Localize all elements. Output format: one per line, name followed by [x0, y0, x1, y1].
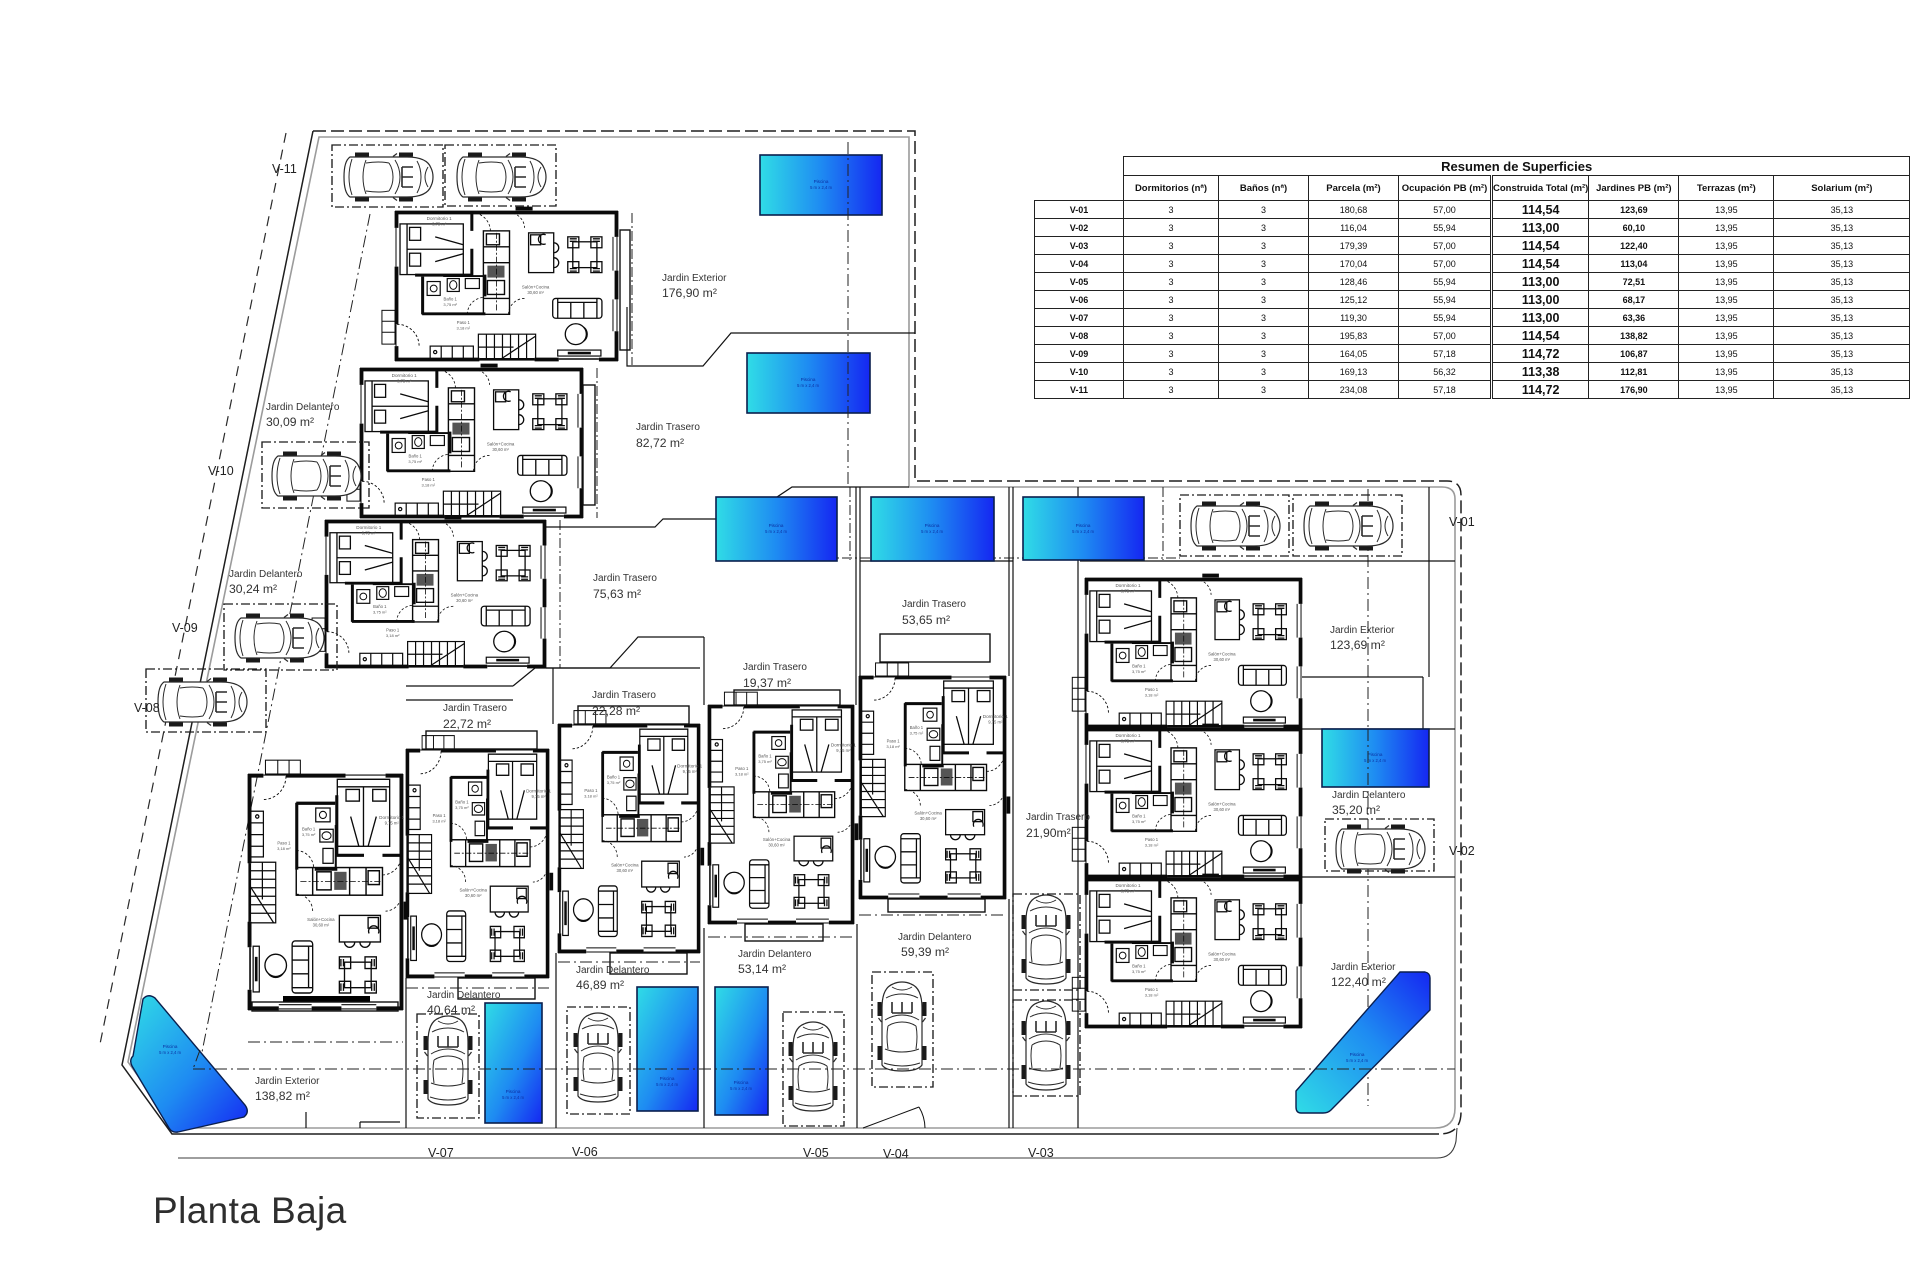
- svg-text:Jardin Delantero: Jardin Delantero: [1332, 790, 1406, 801]
- svg-text:53,65 m²: 53,65 m²: [902, 613, 950, 627]
- svg-text:30,09 m²: 30,09 m²: [266, 415, 314, 429]
- svg-text:Jardin Trasero: Jardin Trasero: [636, 422, 700, 433]
- svg-text:35,20 m²: 35,20 m²: [1332, 803, 1380, 817]
- svg-text:Jardin Trasero: Jardin Trasero: [1026, 812, 1090, 823]
- svg-text:75,63 m²: 75,63 m²: [593, 587, 641, 601]
- svg-text:123,69 m²: 123,69 m²: [1330, 638, 1385, 652]
- svg-text:V-04: V-04: [883, 1147, 909, 1161]
- svg-text:22,72 m²: 22,72 m²: [443, 717, 491, 731]
- svg-text:Jardin Trasero: Jardin Trasero: [593, 573, 657, 584]
- svg-text:Jardin Delantero: Jardin Delantero: [576, 965, 650, 976]
- svg-text:19,37 m²: 19,37 m²: [743, 676, 791, 690]
- svg-text:21,90m²: 21,90m²: [1026, 826, 1071, 840]
- svg-text:Jardin Trasero: Jardin Trasero: [592, 690, 656, 701]
- svg-text:V-05: V-05: [803, 1146, 829, 1160]
- svg-text:V-03: V-03: [1028, 1146, 1054, 1160]
- svg-text:Jardin Exterior: Jardin Exterior: [255, 1076, 320, 1087]
- svg-text:V-08: V-08: [134, 701, 160, 715]
- svg-text:176,90 m²: 176,90 m²: [662, 286, 717, 300]
- svg-text:Jardin Delantero: Jardin Delantero: [738, 949, 812, 960]
- svg-text:22,28 m²: 22,28 m²: [592, 704, 640, 718]
- svg-text:Jardin Delantero: Jardin Delantero: [427, 990, 501, 1001]
- svg-text:Jardin Delantero: Jardin Delantero: [266, 402, 340, 413]
- svg-text:V-01: V-01: [1449, 515, 1475, 529]
- svg-text:Jardin Trasero: Jardin Trasero: [902, 599, 966, 610]
- svg-text:Jardin Exterior: Jardin Exterior: [1330, 625, 1395, 636]
- svg-text:V-06: V-06: [572, 1145, 598, 1159]
- svg-text:V-09: V-09: [172, 621, 198, 635]
- svg-text:138,82 m²: 138,82 m²: [255, 1089, 310, 1103]
- svg-text:V-02: V-02: [1449, 844, 1475, 858]
- svg-text:V-07: V-07: [428, 1146, 454, 1160]
- svg-text:V-11: V-11: [272, 162, 297, 176]
- svg-text:122,40 m²: 122,40 m²: [1331, 975, 1386, 989]
- svg-text:40,64 m²: 40,64 m²: [427, 1003, 475, 1017]
- svg-text:Jardin Trasero: Jardin Trasero: [743, 662, 807, 673]
- svg-text:Jardin Delantero: Jardin Delantero: [229, 569, 303, 580]
- svg-text:Jardin Exterior: Jardin Exterior: [1331, 962, 1396, 973]
- svg-text:46,89 m²: 46,89 m²: [576, 978, 624, 992]
- svg-text:Jardin Exterior: Jardin Exterior: [662, 273, 727, 284]
- svg-text:Jardin Delantero: Jardin Delantero: [898, 932, 972, 943]
- svg-text:Jardin Trasero: Jardin Trasero: [443, 703, 507, 714]
- svg-text:59,39 m²: 59,39 m²: [901, 945, 949, 959]
- svg-text:V-10: V-10: [208, 464, 234, 478]
- svg-text:53,14 m²: 53,14 m²: [738, 962, 786, 976]
- svg-text:82,72 m²: 82,72 m²: [636, 436, 684, 450]
- svg-text:30,24 m²: 30,24 m²: [229, 582, 277, 596]
